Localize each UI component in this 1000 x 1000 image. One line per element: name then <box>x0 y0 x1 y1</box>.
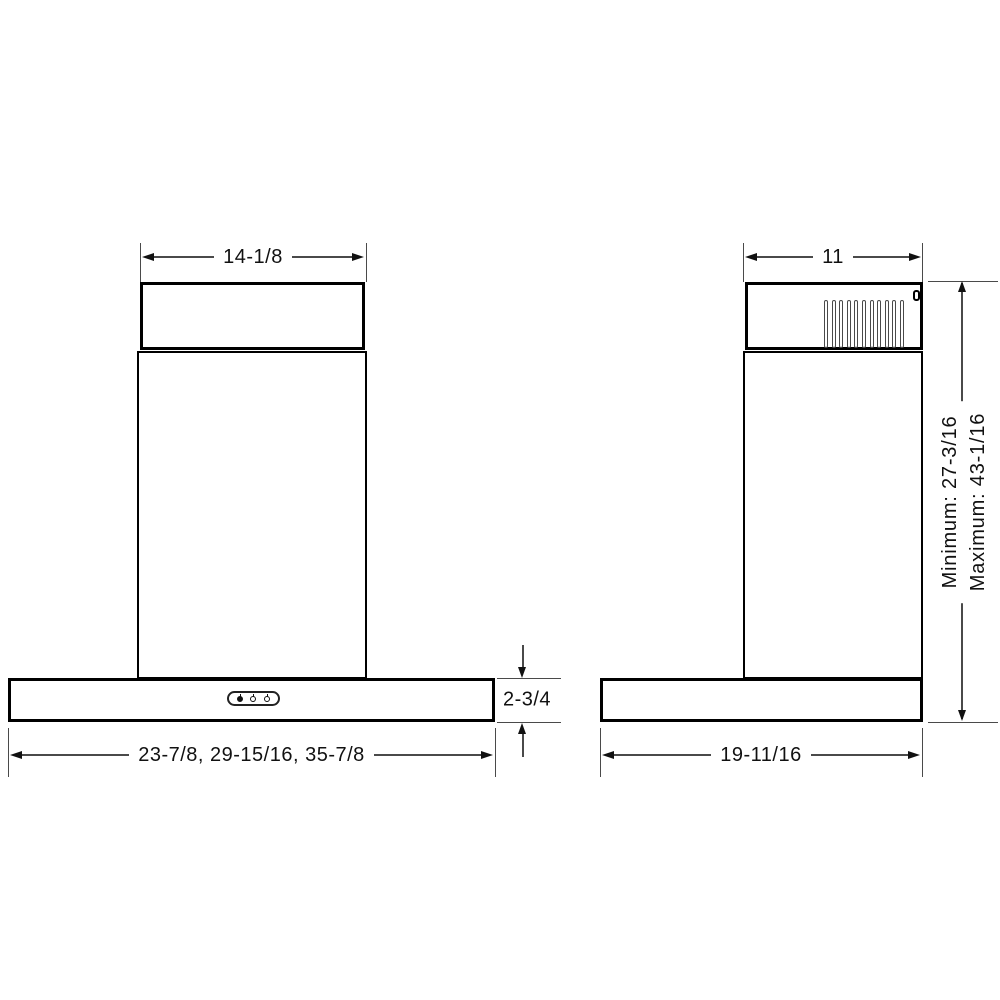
louver-slat <box>847 300 851 348</box>
height-max-label: Maximum: 43-1/16 <box>964 413 992 591</box>
louver-slat <box>854 300 858 348</box>
tick-line <box>928 722 998 723</box>
louver-slat <box>832 300 836 348</box>
arrow-stem <box>522 645 524 668</box>
fan-icon <box>264 696 270 702</box>
front-lower-duct-cover <box>137 351 367 679</box>
dimension-duct-depth: 11 <box>745 247 921 267</box>
arrow-right-icon <box>352 253 364 261</box>
extension-line <box>922 243 923 282</box>
louver-slat <box>877 300 881 348</box>
base-height-label: 2-3/4 <box>503 689 551 712</box>
extension-line <box>922 728 923 777</box>
arrow-down-icon <box>518 667 526 678</box>
arrow-up-icon <box>958 281 966 292</box>
louver-slat <box>885 300 889 348</box>
arrow-left-icon <box>602 751 614 759</box>
arrow-left-icon <box>745 253 757 261</box>
arrow-right-icon <box>909 253 921 261</box>
extension-line <box>366 243 367 282</box>
arrow-right-icon <box>481 751 493 759</box>
light-icon <box>237 696 243 702</box>
extension-line <box>8 728 9 777</box>
arrow-down-icon <box>958 710 966 721</box>
arrow-left-icon <box>142 253 154 261</box>
louver-slat <box>892 300 896 348</box>
duct-depth-label: 11 <box>813 247 853 267</box>
extension-line <box>140 243 141 282</box>
tick-line <box>497 678 561 679</box>
fan-icon <box>250 696 256 702</box>
vent-louvers <box>824 300 904 348</box>
extension-line <box>600 728 601 777</box>
hood-widths-label: 23-7/8, 29-15/16, 35-7/8 <box>129 745 374 765</box>
dimension-hood-widths: 23-7/8, 29-15/16, 35-7/8 <box>10 745 493 765</box>
arrow-up-icon <box>518 723 526 734</box>
louver-slat <box>862 300 866 348</box>
arrow-right-icon <box>908 751 920 759</box>
arrow-stem <box>522 734 524 757</box>
front-upper-duct-cover <box>140 282 365 350</box>
arrow-left-icon <box>10 751 22 759</box>
extension-line <box>495 728 496 777</box>
dimension-duct-width: 14-1/8 <box>142 247 364 267</box>
side-lower-duct-cover <box>743 351 923 679</box>
hood-depth-label: 19-11/16 <box>711 745 810 765</box>
dimension-hood-depth: 19-11/16 <box>602 745 920 765</box>
hood-dimension-drawing: 14-1/8 23-7/8, 29-15/16, 35-7/8 2- <box>0 0 1000 1000</box>
control-panel <box>227 691 280 706</box>
louver-slat <box>900 300 904 348</box>
height-min-label: Minimum: 27-3/16 <box>936 413 964 591</box>
louver-slat <box>870 300 874 348</box>
height-range-label: Minimum: 27-3/16 Maximum: 43-1/16 <box>934 401 994 603</box>
louver-slat <box>824 300 828 348</box>
louver-slat <box>839 300 843 348</box>
side-hood-base <box>600 678 923 722</box>
tick-line <box>497 722 561 723</box>
extension-line <box>743 243 744 282</box>
duct-width-label: 14-1/8 <box>214 247 292 267</box>
duct-notch <box>913 290 920 301</box>
